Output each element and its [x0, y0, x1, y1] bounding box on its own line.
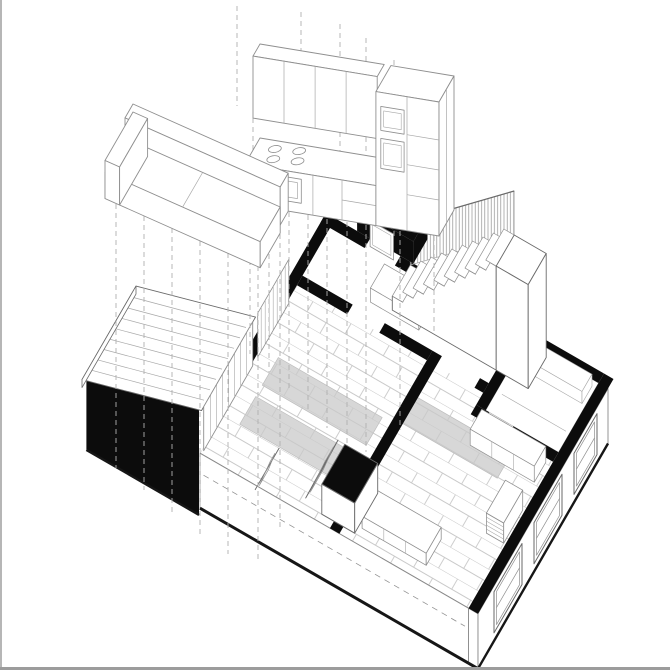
axonometric-drawing: axonometric-floor-plan-drawing	[0, 0, 670, 670]
canvas-left-border	[0, 0, 2, 670]
drawing-canvas: axonometric-floor-plan-drawing	[0, 0, 670, 670]
sofa-unit	[105, 104, 288, 268]
